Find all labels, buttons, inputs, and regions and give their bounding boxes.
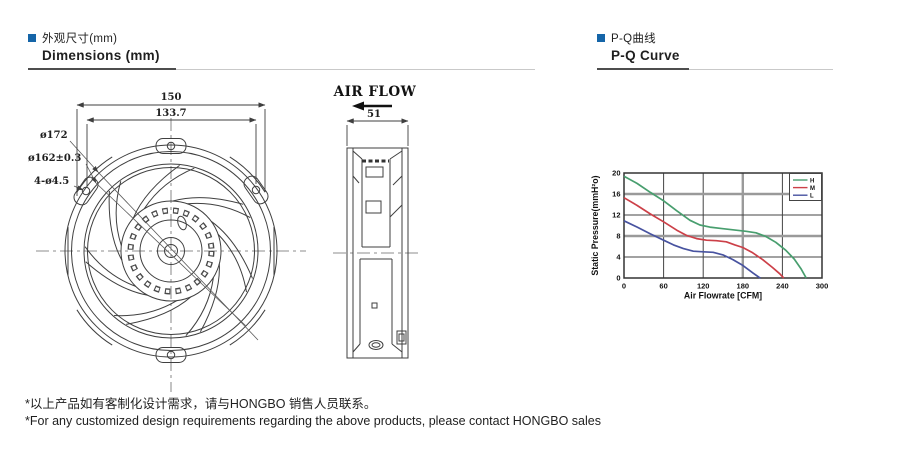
legend-label: L: [810, 194, 814, 200]
y-tick-label: 20: [612, 169, 620, 178]
chart-legend: HML: [790, 174, 822, 201]
y-tick-label: 16: [612, 190, 620, 199]
y-tick-label: 12: [612, 211, 620, 220]
x-tick-label: 180: [737, 282, 750, 291]
footnote-zh: *以上产品如有客制化设计需求，请与HONGBO 销售人员联系。: [25, 396, 601, 413]
pq-divider: [597, 69, 833, 70]
curve-L: [624, 221, 761, 278]
x-axis-label: Air Flowrate [CFM]: [684, 291, 762, 301]
pq-title-zh: P-Q曲线: [611, 30, 680, 46]
pq-title-en: P-Q Curve: [611, 48, 680, 63]
y-axis-label: Static Pressure(mmH²o): [590, 175, 600, 275]
cable-gland: [369, 341, 383, 350]
fan-blades: [85, 165, 252, 335]
y-tick-label: 4: [616, 253, 621, 262]
datasheet-page: { "page": { "accent_color": "#1565a8", "…: [0, 0, 900, 454]
dim-133-label: 133.7: [155, 108, 186, 119]
pq-section-header: P-Q曲线 P-Q Curve: [611, 30, 680, 63]
fan-dimension-drawing: AIR FLOW 150 133.7 51 ø172 ø162±0.3 4-ø4…: [0, 0, 580, 454]
x-tick-label: 120: [697, 282, 710, 291]
footnote-en: *For any customized design requirements …: [25, 413, 601, 430]
air-flow-label: AIR FLOW: [333, 84, 417, 100]
curve-H: [624, 176, 806, 278]
legend-label: H: [810, 178, 814, 184]
mounting-holes-label: 4-ø4.5: [34, 176, 69, 187]
pq-chart: 060120180240300048121620HMLAir Flowrate …: [586, 140, 846, 315]
footnote: *以上产品如有客制化设计需求，请与HONGBO 销售人员联系。 *For any…: [25, 396, 601, 430]
dim-150-label: 150: [161, 92, 182, 103]
y-tick-label: 0: [616, 274, 620, 283]
outer-dia-label: ø172: [40, 130, 68, 141]
x-tick-label: 0: [622, 282, 626, 291]
curve-M: [624, 198, 784, 278]
hub-mark: [176, 215, 188, 231]
dim-51-label: 51: [367, 109, 381, 120]
x-tick-label: 60: [659, 282, 667, 291]
section-bullet-icon: [597, 34, 605, 42]
inner-dia-label: ø162±0.3: [28, 153, 81, 164]
legend-label: M: [810, 186, 815, 192]
x-tick-label: 300: [816, 282, 829, 291]
y-tick-label: 8: [616, 232, 620, 241]
x-tick-label: 240: [776, 282, 789, 291]
